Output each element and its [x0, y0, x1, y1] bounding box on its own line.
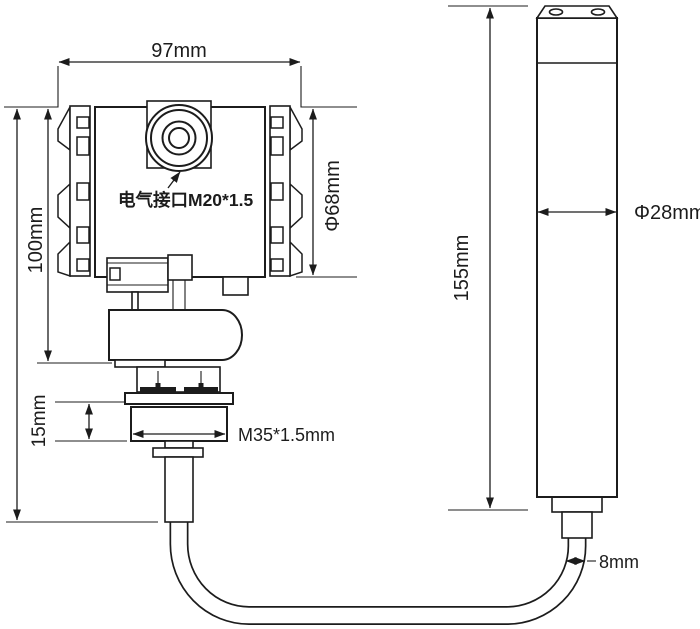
dimension-drawing: 97mm 100mm Φ68mm 电气接口M20*1.5 15mm M35*1.…: [0, 0, 700, 629]
ext-top-left: [4, 66, 58, 107]
label-15mm: 15mm: [29, 395, 50, 448]
seal-bar-right: [184, 387, 218, 392]
sensor-probe: [537, 6, 617, 538]
probe-body: [537, 18, 617, 497]
label-electrical-interface: 电气接口M20*1.5: [118, 190, 253, 210]
cable-outline: [179, 522, 577, 616]
probe-top-hole-right: [592, 9, 605, 15]
cable-gland-tube: [165, 457, 193, 522]
probe-top-hole-left: [550, 9, 563, 15]
bolt-left-head: [156, 383, 161, 387]
side-step-block: [223, 277, 248, 295]
label-28mm: Φ28mm: [634, 202, 700, 224]
nut-neck: [165, 441, 193, 448]
right-cover-cap: [270, 106, 302, 276]
cable-core: [179, 522, 577, 616]
bolt-right-head: [199, 383, 204, 387]
probe-cable-connector: [562, 512, 592, 538]
capsule-rim: [115, 360, 165, 367]
left-cover-cap: [58, 106, 90, 276]
transmitter-head: [58, 101, 302, 522]
label-155mm: 155mm: [451, 235, 473, 302]
gland-collar: [153, 448, 203, 457]
label-68mm: Φ68mm: [322, 160, 344, 232]
label-m35: M35*1.5mm: [238, 425, 335, 445]
extension-lines: [4, 6, 596, 561]
ext-top-right: [301, 66, 357, 107]
conduit-port-center: [169, 128, 189, 148]
flange-plate: [125, 393, 233, 404]
label-100mm: 100mm: [25, 207, 47, 274]
probe-step: [552, 497, 602, 512]
sensor-flange-capsule: [109, 310, 242, 360]
label-8mm: 8mm: [599, 552, 639, 572]
hex-nut: [131, 407, 227, 441]
process-connection: [109, 310, 242, 522]
label-97mm: 97mm: [151, 40, 207, 62]
cable: [179, 522, 577, 616]
transmitter-dimension-diagram: 97mm 100mm Φ68mm 电气接口M20*1.5 15mm M35*1.…: [0, 0, 700, 629]
seal-bar-left: [140, 387, 176, 392]
bracket-boss: [168, 255, 192, 280]
